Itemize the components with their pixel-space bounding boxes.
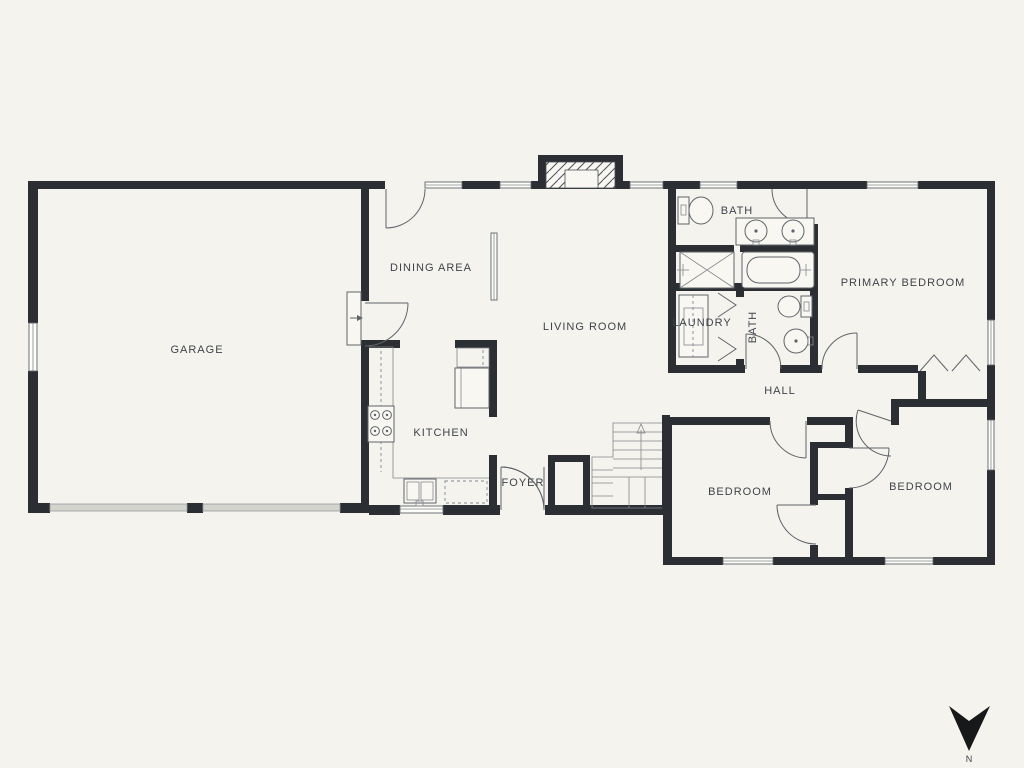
window-icon xyxy=(885,558,933,564)
room-label-kitchen: KITCHEN xyxy=(413,427,468,439)
door-bedroom1 xyxy=(770,421,806,458)
door-back xyxy=(386,189,425,228)
door-bedroom2 xyxy=(856,410,891,456)
door-garage-dining xyxy=(365,303,408,346)
window-icon xyxy=(500,182,531,188)
window-icon xyxy=(29,323,37,371)
window-icon xyxy=(988,320,994,365)
window-icon xyxy=(988,420,994,470)
window-icon xyxy=(700,182,737,188)
window-icon xyxy=(425,182,462,188)
room-label-dining: DINING AREA xyxy=(390,262,472,274)
north-arrow xyxy=(949,706,990,751)
bathtub-icon xyxy=(742,252,814,288)
room-label-bath2: BATH xyxy=(747,311,759,344)
room-label-living: LIVING ROOM xyxy=(543,321,627,333)
room-label-primary-bedroom: PRIMARY BEDROOM xyxy=(841,277,966,289)
toilet-icon xyxy=(778,296,812,317)
sink-icon xyxy=(784,329,813,353)
door-closet-bedroom1 xyxy=(777,505,816,544)
double-vanity-icon xyxy=(736,218,814,245)
chimney xyxy=(538,155,623,189)
sliding-door-icon xyxy=(920,355,980,371)
shower-icon xyxy=(677,252,734,288)
room-label-garage: GARAGE xyxy=(170,344,223,356)
toilet-icon xyxy=(678,197,713,224)
garage-door-icon xyxy=(50,504,187,511)
room-label-bath1: BATH xyxy=(721,205,754,217)
north-label: N xyxy=(966,754,973,764)
room-label-laundry: LAUNDRY xyxy=(672,317,731,329)
refrigerator-icon xyxy=(455,348,489,408)
garage-door-icon xyxy=(203,504,340,511)
window-icon xyxy=(723,558,773,564)
door-primary-bedroom xyxy=(822,333,857,369)
floor-plan-drawing xyxy=(0,0,1024,768)
room-label-bedroom1: BEDROOM xyxy=(708,486,772,498)
door-closet-bedroom2 xyxy=(849,448,889,488)
pass-through xyxy=(491,233,497,300)
room-label-hall: HALL xyxy=(764,385,796,397)
room-label-bedroom2: BEDROOM xyxy=(889,481,953,493)
room-label-foyer: FOYER xyxy=(502,477,545,489)
kitchen-sink-icon xyxy=(404,479,436,506)
stove-icon xyxy=(368,406,394,442)
window-icon xyxy=(867,182,918,188)
window-icon xyxy=(630,182,663,188)
north-arrow-icon xyxy=(949,706,990,751)
water-heater-icon xyxy=(347,292,363,345)
stairs-icon xyxy=(592,423,662,508)
window-icon xyxy=(400,506,443,513)
floor-plan: GARAGE DINING AREA LIVING ROOM KITCHEN F… xyxy=(0,0,1024,768)
